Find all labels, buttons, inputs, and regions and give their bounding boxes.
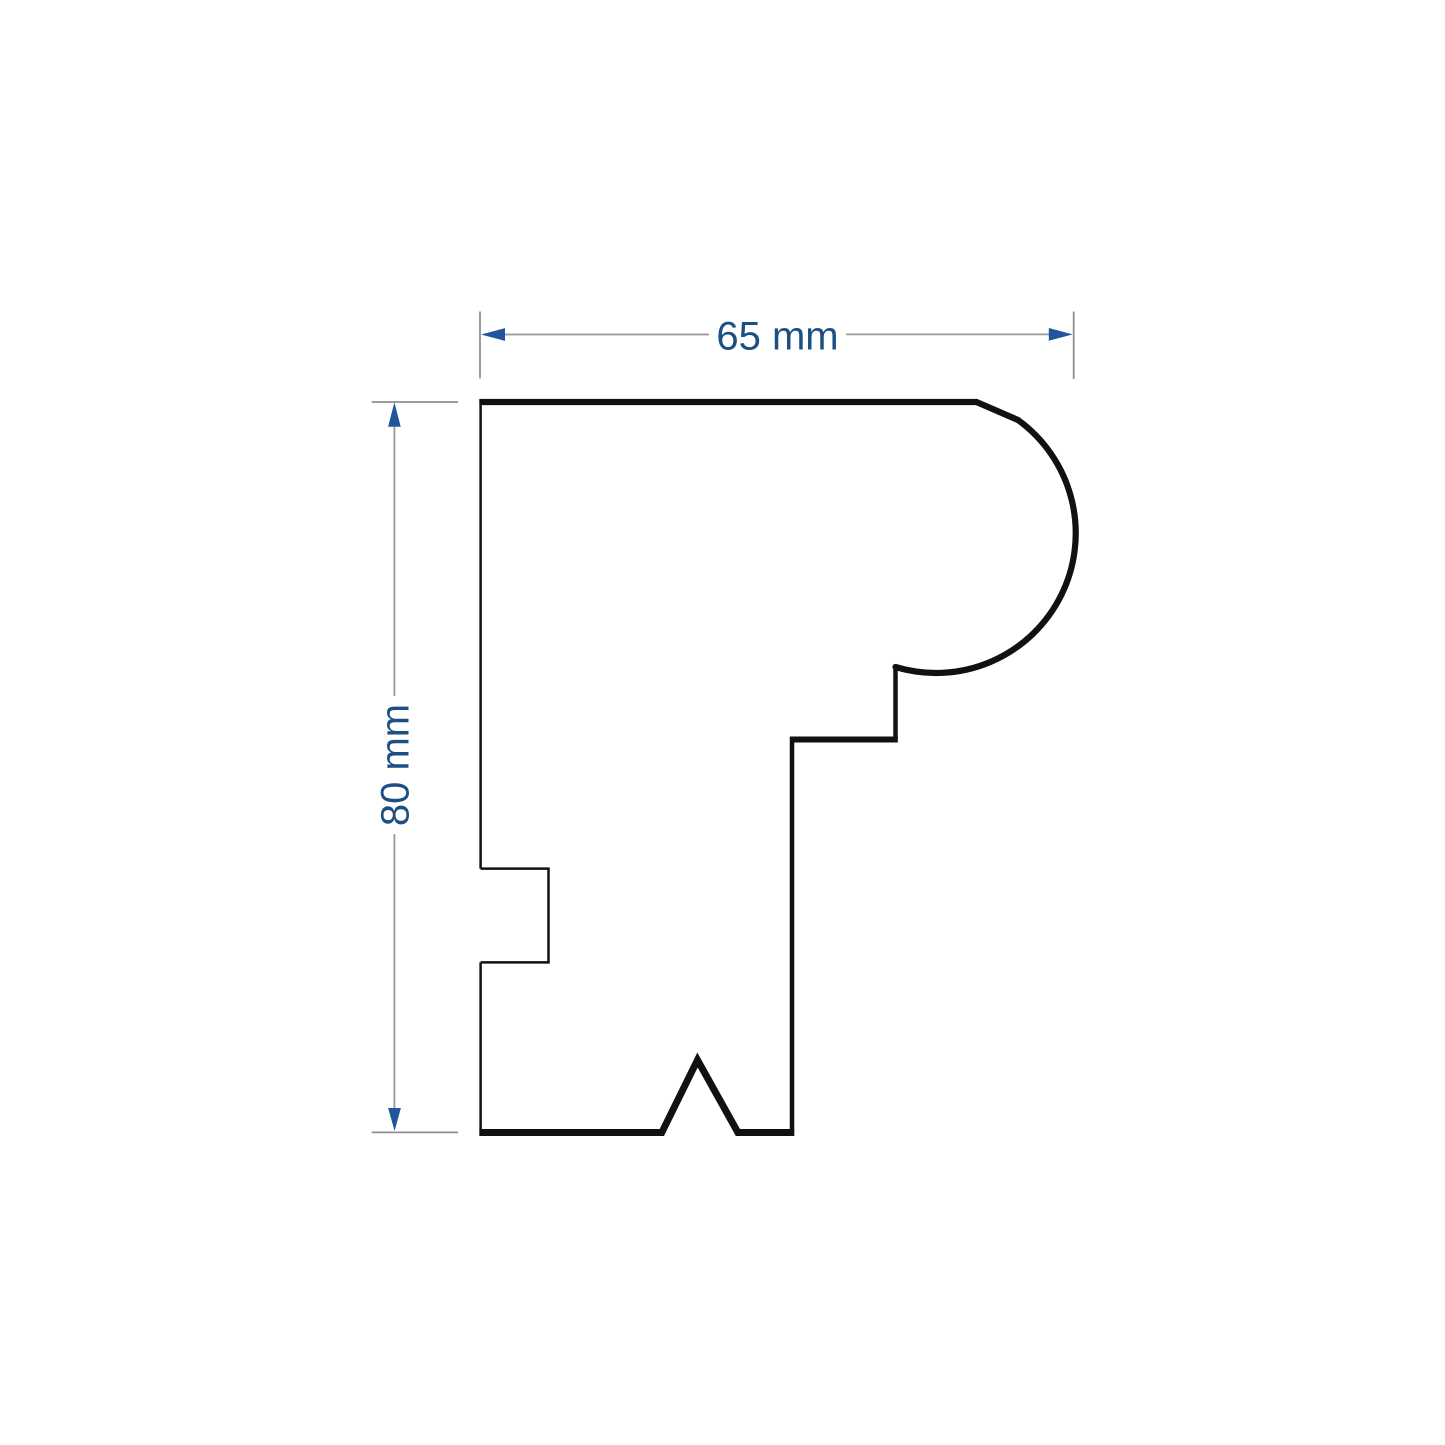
svg-text:80 mm: 80 mm: [374, 704, 418, 826]
svg-text:65 mm: 65 mm: [716, 314, 838, 358]
